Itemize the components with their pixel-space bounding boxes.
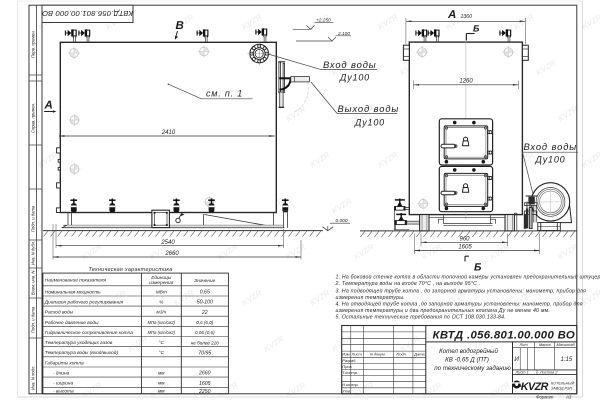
svg-text:- высота: - высота [53,390,74,395]
svg-text:ЗАВОД РЭП: ЗАВОД РЭП [551,387,572,391]
svg-text:Единицы: Единицы [151,275,172,281]
svg-text:KVZR: KVZR [521,381,549,393]
svg-text:Лит.: Лит. [519,342,529,347]
svg-text:Пров.: Пров. [342,364,352,369]
svg-text:0,6 (6,0): 0,6 (6,0) [196,320,214,325]
svg-text:Расход воды: Расход воды [45,310,74,316]
svg-text:измерения температуры.: измерения температуры. [336,295,405,301]
svg-text:Инв. N подл.: Инв. N подл. [31,366,36,390]
svg-text:2250: 2250 [198,389,211,395]
svg-text:°С: °С [159,350,165,356]
svg-text:по техническому заданию: по техническому заданию [434,365,511,372]
svg-text:2. Температура воды на входе: 2. Температура воды на входе 70°С , на в… [335,281,481,287]
svg-text:мм: мм [158,372,165,377]
svg-text:22: 22 [201,310,208,316]
svg-text:Температура воды (вход/выход): Температура воды (вход/выход) [45,350,119,356]
svg-text:Справ. примен.: Справ. примен. [31,103,36,133]
svg-text:Диапазон рабочего регулировани: Диапазон рабочего регулирования [44,300,124,306]
svg-text:2660: 2660 [198,371,211,377]
svg-text:Т.контр.: Т.контр. [342,370,358,375]
svg-text:КВТД .056.801.00.000 ВО: КВТД .056.801.00.000 ВО [433,329,576,341]
svg-text:Котел водогрейный: Котел водогрейный [439,348,498,355]
svg-text:4. На отводящей трубе котла ,: 4. На отводящей трубе котла ,до запорной… [336,300,583,307]
svg-text:Температура уходящих газов: Температура уходящих газов [45,340,113,346]
svg-text:Ду100: Ду100 [354,118,385,128]
svg-text:измерения: измерения [149,281,173,286]
svg-text:И: И [514,356,519,363]
svg-text:м3/ч: м3/ч [156,310,166,316]
svg-text:Изм. Лист: Изм. Лист [342,352,362,357]
svg-text:Вход воды: Вход воды [524,141,578,152]
svg-text:N докум.: N докум. [370,352,386,357]
svg-text:Техническая характеристика: Техническая характеристика [88,267,172,273]
svg-text:МВт: МВт [156,289,167,295]
svg-text:- ширина: - ширина [53,382,74,387]
svg-text:2.100: 2.100 [337,31,350,37]
svg-text:КОТЕЛЬНЫЙ: КОТЕЛЬНЫЙ [551,381,575,385]
svg-text:0,06 (0,6): 0,06 (0,6) [195,330,215,335]
svg-text:Вход воды: Вход воды [323,59,377,70]
svg-text:Б: Б [474,262,482,274]
svg-text:+2.250: +2.250 [316,17,331,23]
svg-text:КВТД.056.801.00.000 ВО: КВТД.056.801.00.000 ВО [42,9,133,18]
svg-text:50-100: 50-100 [197,300,213,306]
svg-text:МПа (кгс/см2): МПа (кгс/см2) [148,330,176,335]
svg-text:960: 960 [459,237,470,243]
svg-text:Значение: Значение [194,278,215,284]
svg-text:мм: мм [158,390,165,395]
svg-text:Подп. и дата: Подп. и дата [31,205,36,232]
svg-text:2540: 2540 [160,240,175,246]
svg-text:2410: 2410 [161,130,176,136]
svg-text:2660: 2660 [164,251,179,257]
svg-text:Масштаб: Масштаб [557,342,576,347]
svg-text:1360: 1360 [461,14,473,20]
svg-text:%: % [159,300,164,306]
svg-text:А: А [43,99,52,111]
svg-text:Инв. N дубл.: Инв. N дубл. [31,241,36,265]
svg-text:Перв. примен.: Перв. примен. [31,30,36,58]
svg-text:Масса: Масса [539,342,551,347]
svg-text:А3: А3 [565,395,572,400]
svg-text:- длина: - длина [53,371,70,377]
svg-text:МПа (кгс/см2): МПа (кгс/см2) [148,320,176,325]
svg-text:Номинальная мощность: Номинальная мощность [45,289,102,295]
svg-text:измерения температуры и два пр: измерения температуры и два предохраните… [336,308,551,314]
svg-text:мм: мм [158,382,165,387]
svg-text:Н.контр.: Н.контр. [342,382,358,387]
svg-text:Разраб.: Разраб. [342,358,356,363]
svg-text:Наименование показателя: Наименование показателя [45,277,107,283]
svg-text:70/95: 70/95 [198,350,211,356]
svg-text:3. На подводящей трубе котла: 3. На подводящей трубе котла , до запорн… [336,287,587,294]
svg-text:Выход воды: Выход воды [338,103,400,114]
svg-text:КВ -0,65 Д (ПТ): КВ -0,65 Д (ПТ) [445,356,489,363]
svg-text:Б: Б [473,24,480,34]
svg-text:Формат: Формат [536,395,554,400]
svg-text:Гидравлическое сопротивление к: Гидравлическое сопротивление котла [45,330,133,336]
svg-text:В: В [175,20,183,32]
svg-text:1:15: 1:15 [561,357,573,363]
svg-text:Рабочее давление воды: Рабочее давление воды [45,320,99,326]
svg-text:1605: 1605 [458,245,472,251]
svg-text:Листов 2: Листов 2 [539,370,558,375]
svg-text:Взам. инв. N: Взам. инв. N [31,270,36,295]
svg-text:не более 220: не более 220 [191,340,219,345]
svg-text:0.000: 0.000 [336,218,348,224]
svg-text:1605: 1605 [199,381,211,387]
svg-text:Лист 1: Лист 1 [515,370,529,375]
svg-text:Подп.: Подп. [397,352,407,357]
svg-text:1. На боковой стенке котла в: 1. На боковой стенке котла в области топ… [336,273,600,280]
svg-text:Дата: Дата [413,352,425,357]
svg-text:см. п. 1: см. п. 1 [206,88,243,98]
svg-text:1260: 1260 [459,79,473,85]
svg-text:0,65: 0,65 [200,290,210,296]
svg-text:Ду100: Ду100 [535,154,566,164]
svg-text:Ду100: Ду100 [339,73,370,83]
svg-text:А: А [447,9,456,21]
svg-text:Габариты котла: Габариты котла [45,360,84,366]
svg-text:Утв.: Утв. [342,388,351,393]
svg-text:°С: °С [159,340,165,346]
svg-text:5. Остальные технические треб: 5. Остальные технические требования по О… [336,314,506,320]
svg-text:Подп. и дата: Подп. и дата [31,306,36,333]
